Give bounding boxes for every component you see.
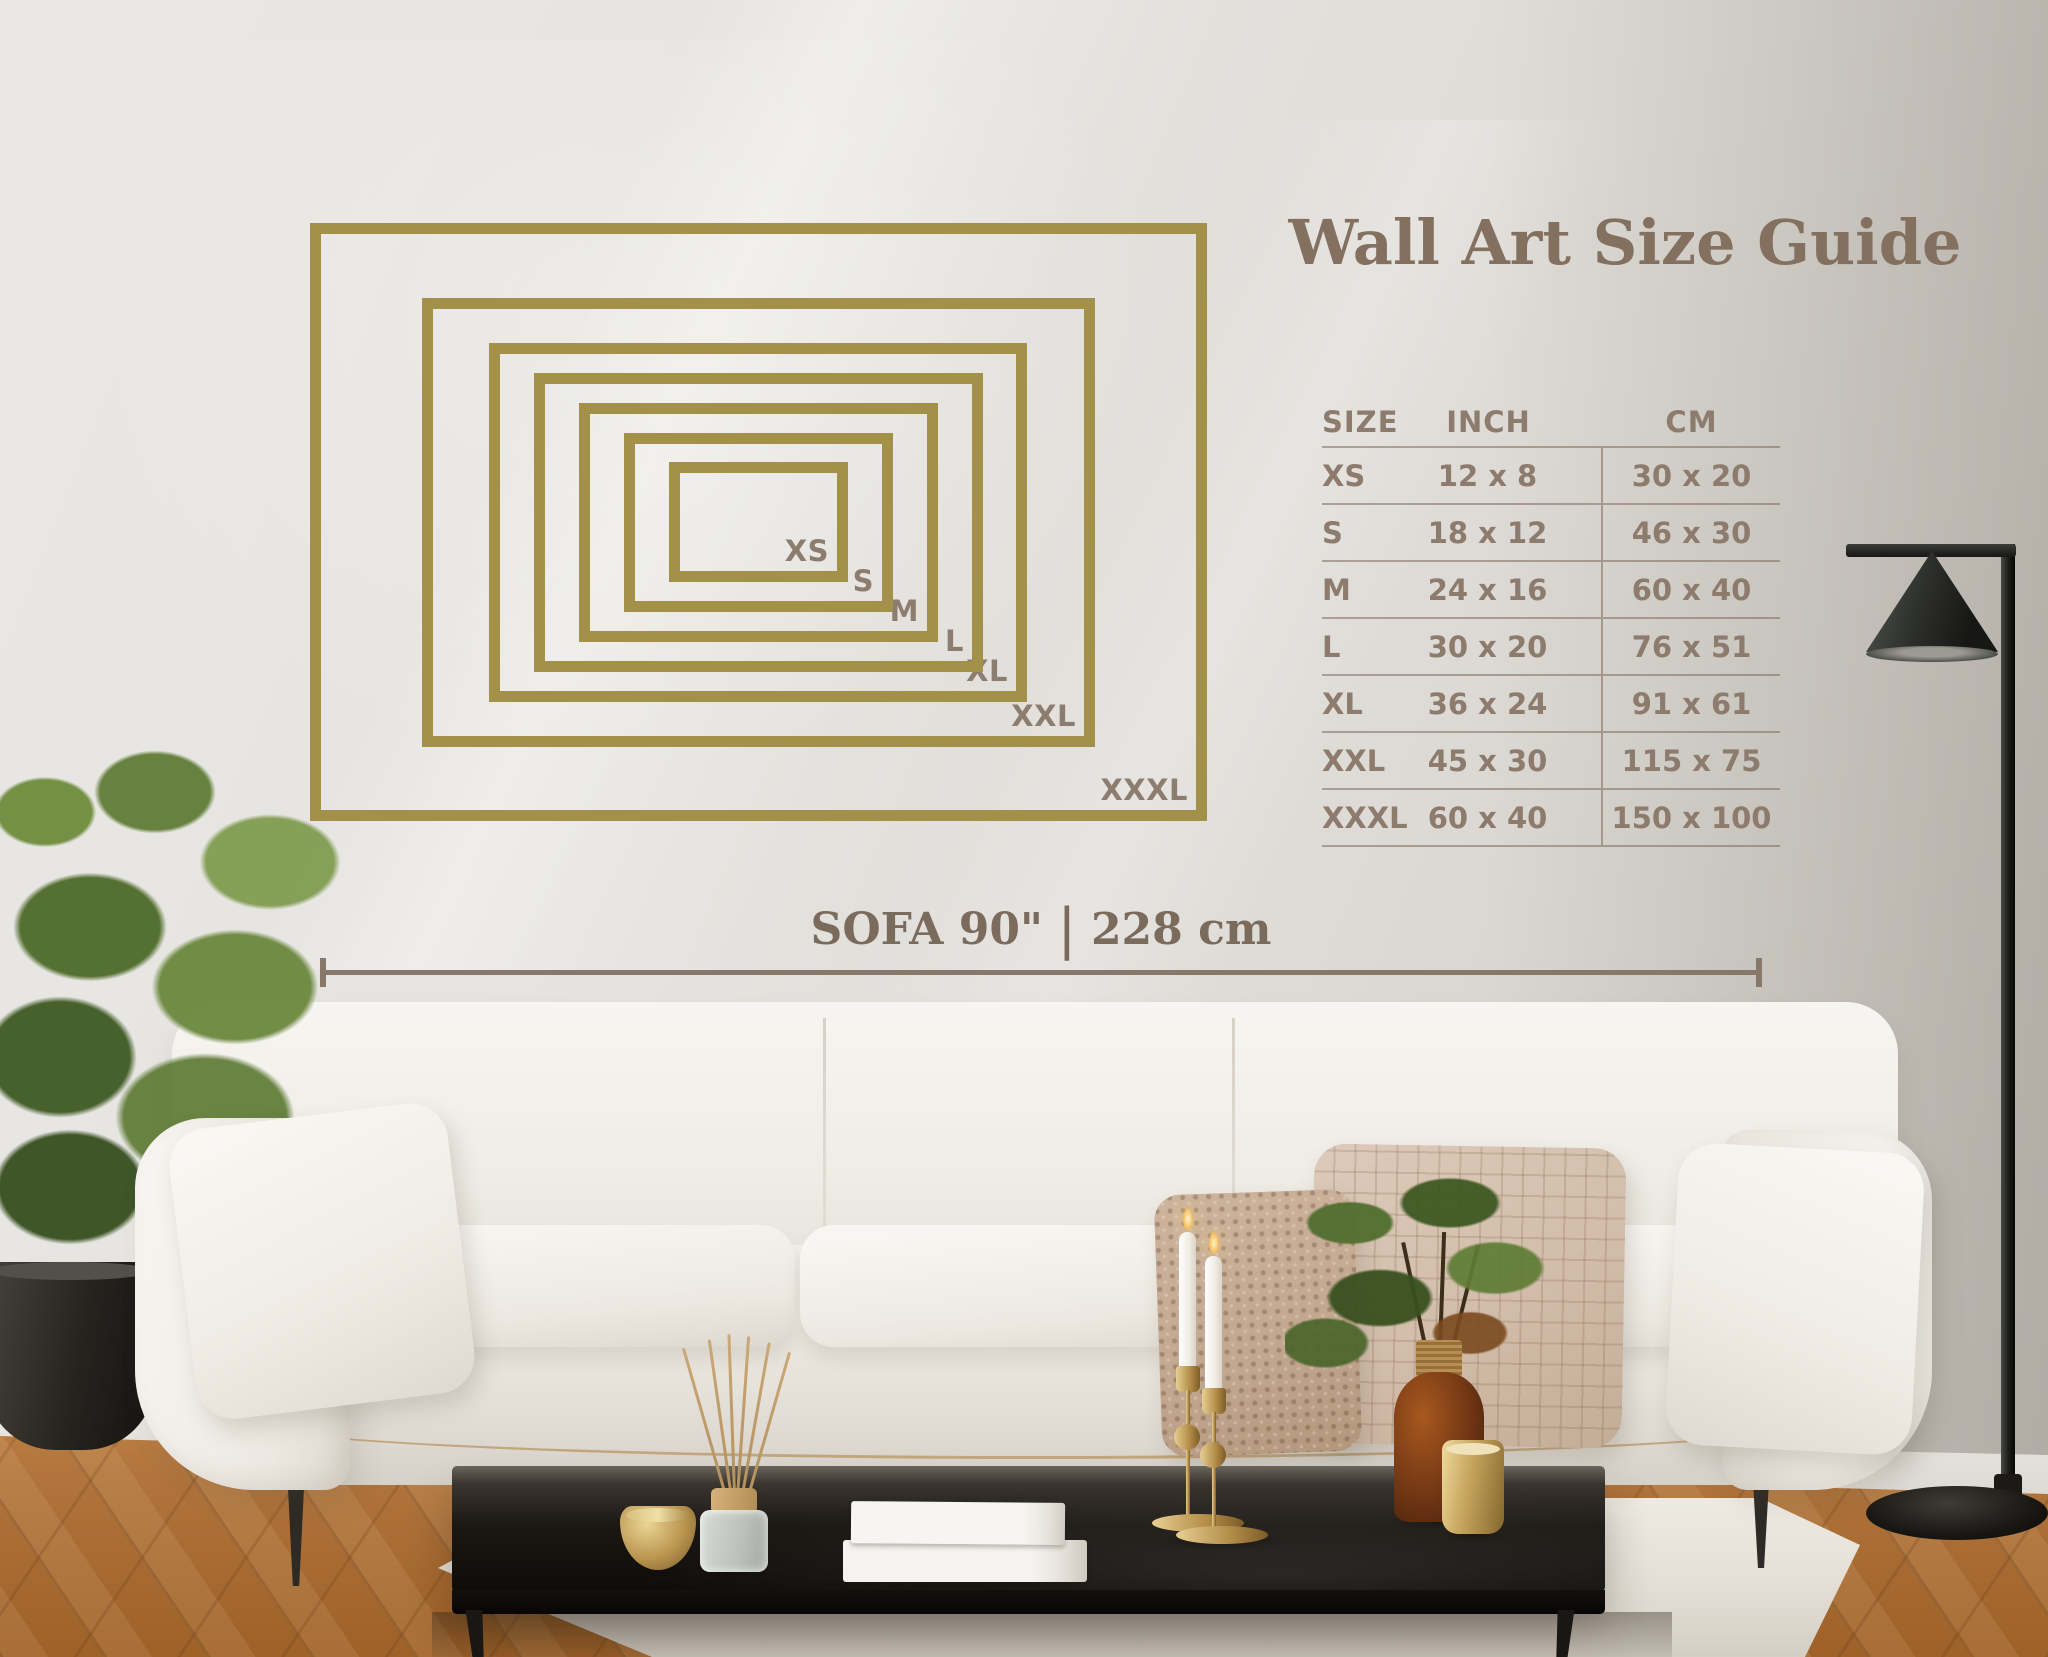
page-title: Wall Art Size Guide xyxy=(1272,206,1978,279)
header-cm: CM xyxy=(1603,405,1780,439)
wall-art-size-guide-scene: XXXLXXLXLLMSXS Wall Art Size Guide SIZE … xyxy=(0,0,2048,1657)
measurement-separator: | xyxy=(1059,898,1075,962)
size-table: SIZE INCH CM XS12 x 830 x 20S18 x 1246 x… xyxy=(1322,398,1780,847)
taper-candle xyxy=(1205,1256,1222,1392)
coffee-table-edge xyxy=(452,1590,1605,1614)
inch-cell: 60 x 40 xyxy=(1410,790,1603,845)
size-cell: S xyxy=(1322,516,1410,550)
size-frame-xs: XS xyxy=(669,462,848,582)
candlestick-cup xyxy=(1176,1366,1200,1392)
candlestick-cup xyxy=(1202,1388,1226,1414)
candlestick-sphere xyxy=(1174,1424,1200,1450)
cm-cell: 115 x 75 xyxy=(1603,744,1780,778)
cm-cell: 91 x 61 xyxy=(1603,687,1780,721)
pillow-white-left xyxy=(165,1099,478,1423)
frame-label-xxxl: XXXL xyxy=(1100,773,1188,807)
cm-cell: 30 x 20 xyxy=(1603,459,1780,493)
floor-lamp-shade-rim xyxy=(1866,646,1998,662)
table-row: XL36 x 2491 x 61 xyxy=(1322,674,1780,731)
size-cell: XS xyxy=(1322,459,1410,493)
candlestick-base xyxy=(1176,1526,1268,1544)
sofa-width-inches: SOFA 90" xyxy=(811,904,1043,955)
header-inch: INCH xyxy=(1410,398,1603,446)
size-cell: XXXL xyxy=(1322,801,1410,835)
header-size: SIZE xyxy=(1322,405,1410,439)
frame-label-xxl: XXL xyxy=(1011,699,1076,733)
frame-label-m: M xyxy=(890,594,919,628)
table-row: XXXL60 x 40150 x 100 xyxy=(1322,788,1780,847)
frame-label-l: L xyxy=(945,624,964,658)
size-cell: XXL xyxy=(1322,744,1410,778)
taper-candle xyxy=(1179,1232,1196,1372)
floor-lamp-base xyxy=(1866,1486,2048,1540)
coffee-table-shadow xyxy=(432,1612,1672,1657)
table-row: XXL45 x 30115 x 75 xyxy=(1322,731,1780,788)
gold-candle-cup xyxy=(1442,1440,1504,1534)
candle-flame xyxy=(1183,1208,1193,1230)
frame-label-xs: XS xyxy=(785,534,829,568)
size-cell: M xyxy=(1322,573,1410,607)
inch-cell: 18 x 12 xyxy=(1410,505,1603,560)
table-row: XS12 x 830 x 20 xyxy=(1322,446,1780,503)
inch-cell: 12 x 8 xyxy=(1410,448,1603,503)
size-cell: XL xyxy=(1322,687,1410,721)
inch-cell: 30 x 20 xyxy=(1410,619,1603,674)
inch-cell: 36 x 24 xyxy=(1410,676,1603,731)
candlestick-sphere xyxy=(1200,1442,1226,1468)
floor-lamp-pole xyxy=(2001,544,2015,1512)
vase-plant-leaves xyxy=(1285,1158,1545,1373)
table-row: M24 x 1660 x 40 xyxy=(1322,560,1780,617)
book xyxy=(843,1540,1087,1582)
sofa-width-cm: 228 cm xyxy=(1091,904,1272,955)
cm-cell: 76 x 51 xyxy=(1603,630,1780,664)
inch-cell: 24 x 16 xyxy=(1410,562,1603,617)
candlestick-stem xyxy=(1186,1390,1190,1522)
cm-cell: 150 x 100 xyxy=(1603,801,1780,835)
measurement-line xyxy=(320,970,1762,975)
size-table-header: SIZE INCH CM xyxy=(1322,398,1780,446)
size-cell: L xyxy=(1322,630,1410,664)
sofa-measurement-label: SOFA 90"|228 cm xyxy=(320,904,1762,955)
pillow-white-right xyxy=(1664,1142,1925,1456)
cm-cell: 60 x 40 xyxy=(1603,573,1780,607)
table-row: S18 x 1246 x 30 xyxy=(1322,503,1780,560)
candlestick-stem xyxy=(1212,1412,1216,1532)
diffuser-jar xyxy=(700,1510,768,1572)
candle-flame xyxy=(1209,1232,1219,1254)
size-table-body: XS12 x 830 x 20S18 x 1246 x 30M24 x 1660… xyxy=(1322,446,1780,847)
frame-label-s: S xyxy=(853,564,874,598)
inch-cell: 45 x 30 xyxy=(1410,733,1603,788)
cm-cell: 46 x 30 xyxy=(1603,516,1780,550)
book xyxy=(851,1501,1065,1545)
table-row: L30 x 2076 x 51 xyxy=(1322,617,1780,674)
